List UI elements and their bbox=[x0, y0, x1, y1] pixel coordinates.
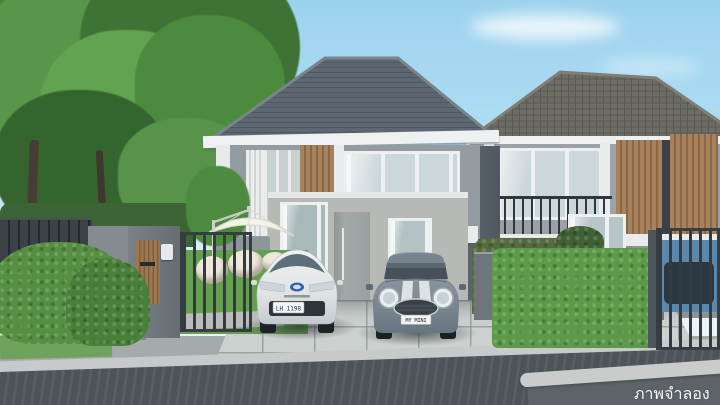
hedge-bright-right bbox=[492, 248, 660, 348]
gate-right bbox=[656, 228, 720, 350]
headlight-inner bbox=[383, 292, 395, 304]
side-mirror bbox=[251, 280, 257, 285]
scene-architectural-rendering: LH 1198 MY MINI ภาพจำลอง bbox=[0, 0, 720, 405]
side-mirror bbox=[366, 284, 373, 290]
bonnet-stripe bbox=[401, 281, 413, 301]
license-plate-text: LH 1198 bbox=[276, 306, 302, 313]
intercom bbox=[161, 244, 173, 260]
hedge-bush-left bbox=[66, 258, 150, 346]
side-mirror bbox=[459, 284, 466, 290]
bonnet-stripe bbox=[419, 281, 431, 301]
license-plate-text: MY MINI bbox=[405, 318, 426, 324]
side-mirror bbox=[337, 280, 343, 285]
cloud bbox=[470, 14, 620, 40]
windshield-reflection bbox=[386, 263, 446, 268]
car-prius: LH 1198 bbox=[250, 240, 344, 336]
mail-slot bbox=[140, 262, 155, 266]
headlight-inner bbox=[437, 292, 449, 304]
roof bbox=[387, 253, 445, 263]
grille bbox=[394, 299, 438, 317]
louver-gap bbox=[662, 140, 670, 234]
watermark-text: ภาพจำลอง bbox=[634, 382, 710, 405]
car-mini: MY MINI bbox=[364, 246, 468, 340]
upper-grill bbox=[284, 295, 310, 298]
wood-louver-panel bbox=[670, 134, 718, 234]
toyota-emblem-inner bbox=[293, 285, 301, 289]
